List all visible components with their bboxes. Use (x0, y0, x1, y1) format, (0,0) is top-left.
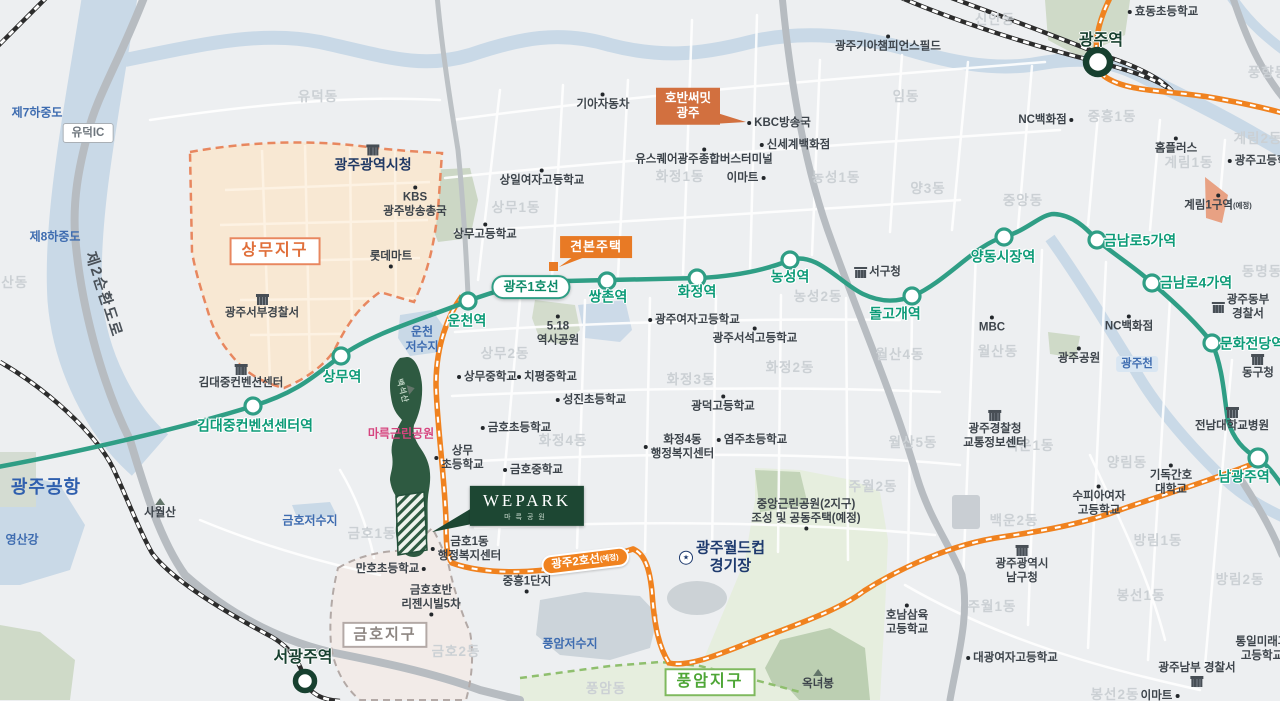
label-text: 홈플러스 (1155, 141, 1197, 155)
label-text: 양림동 (1107, 455, 1147, 471)
building-icon (1017, 548, 1028, 556)
label-text: 농성2동 (794, 289, 843, 305)
label-text: 풍암저수지 (542, 637, 597, 652)
label-text: 김대중컨벤션센터역 (197, 417, 313, 434)
poi-label: 동구청 (1242, 354, 1274, 380)
dong-label: 금호2동 (432, 644, 481, 660)
dong-label: 방림2동 (1216, 572, 1265, 588)
label-text: 남광주역 (1218, 468, 1270, 485)
label-text: 효동초등학교 (1135, 5, 1198, 19)
label-text: 봉선1동 (1117, 588, 1166, 604)
dong-label: 유덕동 (298, 89, 338, 105)
dong-label: 주월2동 (849, 479, 898, 495)
label-text: 상무중학교 (464, 370, 517, 384)
poi-label: 광주남부 경찰서 (1158, 661, 1235, 687)
st-label: 상무역 (323, 368, 362, 385)
label-text: NC백화점 (1018, 113, 1066, 127)
label-text: 김대중컨벤션센터 (199, 376, 284, 390)
mountain-icon (813, 669, 823, 676)
poi-label: 광주경찰청교통정보센터 (963, 410, 1026, 450)
label-text: 금호2동 (432, 644, 481, 660)
label-text: 전남대학교병원 (1195, 419, 1269, 433)
label-text: 광주여자고등학교 (655, 313, 740, 327)
dong-label: 양3동 (910, 181, 945, 197)
label-text: 방림2동 (1216, 572, 1265, 588)
strail-label: 서광주역 (274, 648, 333, 668)
poi-dot (1077, 346, 1081, 350)
dong-label: 화정1동 (656, 169, 705, 185)
label-text: 마륵근린공원 (368, 427, 434, 442)
poi-label: 금호중학교 (503, 463, 563, 477)
label-text: 신세계백화점 (767, 138, 830, 152)
poi-label: 광주동부경찰서 (1213, 293, 1269, 321)
label-text: 주월1동 (968, 599, 1017, 615)
st-label: 남광주역 (1218, 468, 1270, 485)
label-text: 기아자동차 (577, 97, 630, 111)
label-text: 방림1동 (1134, 533, 1183, 549)
label-layer: 유덕동우산동신안동임동중흥1동풍향동계림2동계림1동양3동중앙동동명동상무1동화… (0, 0, 1280, 701)
label-text: 화정4동행정복지센터 (651, 433, 714, 461)
poi-label: MBC (979, 315, 1005, 334)
water-label: 금호저수지 (282, 514, 337, 529)
poi-label: 효동초등학교 (1128, 5, 1198, 19)
wtag-label: 광주천 (1116, 356, 1158, 372)
label-text: 광주남부 경찰서 (1158, 661, 1235, 675)
label-text: 문화전당역 (1220, 335, 1280, 352)
poi-label: 중앙근린공원(2지구)조성 및 공동주택(예정) (751, 497, 860, 530)
poi-label: 전남대학교병원 (1195, 407, 1269, 433)
label-text: 풍향동 (1248, 65, 1280, 81)
label-text: 롯데마트 (370, 249, 412, 263)
label-text: 중흥1단지 (503, 574, 552, 588)
poi-label: 통일미래과고등학교 (1236, 635, 1280, 663)
poi-label: NC백화점 (1105, 314, 1153, 333)
poi-label: 서구청 (855, 265, 901, 279)
label-text: 중앙동 (1003, 193, 1043, 209)
poi-dot (1228, 159, 1232, 163)
poi-label: KBC방송국 (747, 116, 811, 130)
poi-label: 롯데마트 (370, 249, 412, 268)
label-text: 화정2동 (766, 360, 815, 376)
water-label: 영산강 (5, 533, 38, 548)
label-text: 월산4동 (876, 347, 925, 363)
poi-label: 사월산 (144, 498, 176, 520)
poi-label: 수피아여자고등학교 (1073, 484, 1126, 517)
poi-label: 신세계백화점 (760, 138, 830, 152)
label-text: 광주광역시남구청 (996, 557, 1049, 585)
label-text: 농성역 (771, 268, 810, 285)
label-text: NC백화점 (1105, 319, 1153, 333)
d-orange-label: 상무지구 (230, 237, 321, 265)
poi-label: 홈플러스 (1155, 136, 1197, 155)
white-park-label: 백석산 (394, 376, 418, 405)
dong-label: 화정4동 (539, 433, 588, 449)
poi-dot (990, 315, 994, 319)
label-text: 운천저수지 (405, 324, 438, 353)
poi-label: 광주여자고등학교 (648, 313, 740, 327)
label-text: 광주월드컵경기장 (696, 540, 765, 577)
dong-label: 상무1동 (492, 200, 541, 216)
poi-label: 화정4동행정복지센터 (644, 433, 714, 461)
label-text: 백운2동 (990, 513, 1039, 529)
label-text: 쌍촌역 (589, 288, 628, 305)
label-text: 서광주역 (274, 648, 333, 668)
water-label: 제7하중도 (12, 106, 63, 121)
label-text: 백운1동 (1006, 438, 1055, 454)
label-text: 상무역 (323, 368, 362, 385)
poi-dot (503, 468, 507, 472)
label-text: 양동시장역 (971, 248, 1035, 265)
dong-label: 계림2동 (1234, 131, 1280, 147)
poi-dot (457, 375, 461, 379)
poi-label: 금호1동행정복지센터 (431, 535, 501, 563)
ring-label: 제2순환도로 (80, 250, 125, 341)
label-text: 만호초등학교 (356, 562, 419, 576)
poi-dot (753, 326, 757, 330)
poi-dot (747, 121, 751, 125)
poi-label: 금호호반리젠시빌5차 (401, 583, 460, 616)
label-text: 광주기아챔피언스필드 (835, 39, 941, 53)
dong-label: 금호1동 (348, 526, 397, 542)
icbox-label: 유덕IC (63, 123, 114, 143)
label-text: 광주서석고등학교 (713, 331, 798, 345)
label-text: 광주고등학교 (1235, 154, 1280, 168)
label-text: 계림2동 (1234, 131, 1280, 147)
label-text: 광주천 (1121, 357, 1153, 371)
dong-label: 백운1동 (1006, 438, 1055, 454)
poi-dot (966, 656, 970, 660)
pill2-label: 광주2호선(예정) (540, 546, 629, 577)
dong-label: 농성2동 (794, 289, 843, 305)
poi-dot (760, 143, 764, 147)
label-text: 풍암동 (586, 681, 626, 697)
label-text: WEPARK마륵공원 (483, 491, 571, 522)
label-text: 광주경찰청교통정보센터 (963, 422, 1026, 450)
dong-label: 농성1동 (812, 170, 861, 186)
building-icon (368, 147, 379, 155)
st-label: 쌍촌역 (589, 288, 628, 305)
st-label: 금남로4가역 (1160, 274, 1232, 291)
label-text: 영산강 (5, 533, 38, 548)
poi-label: 만호초등학교 (356, 562, 426, 576)
label-text: 금호지구 (353, 626, 416, 644)
poi-dot (1070, 118, 1074, 122)
label-text: 봉선2동 (1091, 687, 1140, 701)
label-text: 동명동 (1242, 264, 1280, 280)
label-text: 염주초등학교 (724, 433, 787, 447)
label-text: 대광여자고등학교 (973, 651, 1058, 665)
poi-dot (886, 34, 890, 38)
poi-dot (422, 567, 426, 571)
label-text: 중앙근린공원(2지구)조성 및 공동주택(예정) (751, 497, 860, 525)
dong-label: 주월1동 (968, 599, 1017, 615)
dong-label: 상무2동 (481, 346, 530, 362)
label-text: 호남삼육고등학교 (886, 608, 928, 636)
building-icon (1213, 305, 1224, 313)
poi-label: 5.18역사공원 (537, 314, 579, 347)
label-text: 상무고등학교 (453, 227, 516, 241)
poi-dot (1175, 694, 1179, 698)
poi-label: 광주서부경찰서 (225, 294, 299, 320)
mountain-icon (155, 498, 165, 505)
poi-label: 치평중학교 (517, 370, 577, 384)
label-text: 제8하중도 (30, 230, 81, 245)
label-text: 백석산 (394, 378, 410, 405)
label-text: 화정1동 (656, 169, 705, 185)
label-text: 상무지구 (242, 241, 309, 261)
poi-label: 금호초등학교 (481, 421, 551, 435)
d-green-label: 풍암지구 (665, 668, 756, 696)
label-text: 광주2호선(예정) (551, 550, 620, 572)
city-label: 광주광역시청 (334, 144, 411, 173)
poi-dot (556, 398, 560, 402)
label-text: 광주1호선 (503, 279, 558, 295)
poi-dot (434, 456, 438, 460)
map-canvas: 유덕동우산동신안동임동중흥1동풍향동계림2동계림1동양3동중앙동동명동상무1동화… (0, 0, 1280, 701)
pink-label: 마륵근린공원 (368, 427, 434, 442)
pill1-label: 광주1호선 (491, 275, 570, 299)
poi-dot (1216, 193, 1220, 197)
dong-label: 월산5동 (889, 435, 938, 451)
dong-label: 화정2동 (766, 360, 815, 376)
label-text: 계림1구역(예정) (1184, 198, 1252, 212)
label-text: 돌고개역 (869, 305, 921, 322)
building-icon (235, 367, 246, 375)
poi-dot (905, 603, 909, 607)
strail-label: 광주역 (1079, 31, 1123, 51)
poi-dot (1174, 136, 1178, 140)
label-text: 광주광역시청 (334, 156, 411, 173)
poi-dot (525, 590, 529, 594)
building-icon (855, 269, 866, 277)
label-text: 제7하중도 (12, 106, 63, 121)
label-text: 임동 (893, 89, 920, 105)
poi-dot (717, 438, 721, 442)
dong-label: 월산동 (978, 344, 1018, 360)
label-text: 금남로4가역 (1160, 274, 1232, 291)
label-text: 제2순환도로 (80, 250, 125, 341)
poi-dot (431, 547, 435, 551)
stadium-label: ★광주월드컵경기장 (679, 540, 765, 577)
label-text: 풍암지구 (677, 672, 744, 692)
poi-label: 상무중학교 (457, 370, 517, 384)
dong-label: 화정3동 (667, 372, 716, 388)
dong-label: 풍향동 (1248, 65, 1280, 81)
label-text: 광주공항 (11, 477, 81, 499)
label-text: 옥녀봉 (802, 677, 834, 691)
label-text: 금호중학교 (510, 463, 563, 477)
label-text: 치평중학교 (524, 370, 577, 384)
label-text: KBC방송국 (754, 116, 811, 130)
dong-label: 임동 (893, 89, 920, 105)
label-text: 금호호반리젠시빌5차 (401, 583, 460, 611)
poi-dot (556, 314, 560, 318)
label-text: 주월2동 (849, 479, 898, 495)
label-text: 사월산 (144, 506, 176, 520)
label-text: 성진초등학교 (563, 393, 626, 407)
poi-label: KBS광주방송총국 (383, 185, 446, 218)
st-label: 김대중컨벤션센터역 (197, 417, 313, 434)
poi-label: 성진초등학교 (556, 393, 626, 407)
poi-dot (429, 613, 433, 617)
poi-label: 광주고등학교 (1228, 154, 1280, 168)
water-label: 풍암저수지 (542, 637, 597, 652)
st-label: 농성역 (771, 268, 810, 285)
poi-dot (389, 265, 393, 269)
label-text: 동구청 (1242, 366, 1274, 380)
poi-dot (1127, 314, 1131, 318)
label-text: 수피아여자고등학교 (1073, 489, 1126, 517)
poi-dot (804, 527, 808, 531)
poi-dot (702, 147, 706, 151)
dong-label: 월산4동 (876, 347, 925, 363)
water-big-label: 광주공항 (11, 477, 81, 499)
poi-dot (721, 394, 725, 398)
label-text: 신안동 (975, 12, 1015, 28)
dong-label: 양림동 (1107, 455, 1147, 471)
st-label: 양동시장역 (971, 248, 1035, 265)
poi-label: 중흥1단지 (503, 574, 552, 593)
poi-label: 상무초등학교 (434, 444, 483, 472)
label-text: 양3동 (910, 181, 945, 197)
co-model-label: 견본주택 (560, 236, 632, 258)
label-text: 금호1동 (348, 526, 397, 542)
label-text: 이마트 (1141, 689, 1173, 701)
poi-label: 이마트 (1141, 689, 1180, 701)
label-text: KBS광주방송총국 (383, 190, 446, 218)
st-label: 돌고개역 (869, 305, 921, 322)
d-gray-label: 금호지구 (342, 622, 427, 648)
wepark-label: WEPARK마륵공원 (470, 486, 584, 526)
label-text: 계림1동 (1165, 155, 1214, 171)
label-text: 유스퀘어광주종합버스터미널 (635, 152, 773, 166)
label-text: 금호저수지 (282, 514, 337, 529)
poi-label: 옥녀봉 (802, 669, 834, 691)
water-label: 제8하중도 (30, 230, 81, 245)
label-text: 광덕고등학교 (691, 399, 754, 413)
st-label: 문화전당역 (1220, 335, 1280, 352)
poi-label: 광주서석고등학교 (713, 326, 798, 345)
poi-label: 유스퀘어광주종합버스터미널 (635, 147, 773, 166)
dong-label: 중앙동 (1003, 193, 1043, 209)
label-text: 화정역 (678, 283, 717, 300)
water-label: 운천저수지 (405, 324, 438, 353)
label-text: 금호1동행정복지센터 (438, 535, 501, 563)
dong-label: 계림1동 (1165, 155, 1214, 171)
dong-label: 신안동 (975, 12, 1015, 28)
label-text: 광주서부경찰서 (225, 306, 299, 320)
label-text: 견본주택 (570, 239, 622, 255)
poi-label: 광주광역시남구청 (996, 545, 1049, 585)
poi-label: 광주공원 (1058, 346, 1100, 365)
dong-label: 봉선2동 (1091, 687, 1140, 701)
dong-label: 우산동 (0, 275, 28, 291)
label-text: 광주동부경찰서 (1227, 293, 1269, 321)
poi-dot (1097, 484, 1101, 488)
poi-label: 기독간호대학교 (1150, 463, 1192, 496)
label-text: 이마트 (727, 171, 759, 185)
label-text: 서구청 (869, 265, 901, 279)
label-text: 상무초등학교 (441, 444, 483, 472)
dong-label: 봉선1동 (1117, 588, 1166, 604)
label-text: 상일여자고등학교 (500, 173, 585, 187)
poi-dot (761, 176, 765, 180)
building-icon (257, 297, 268, 305)
label-text: 월산동 (978, 344, 1018, 360)
label-text: 통일미래과고등학교 (1236, 635, 1280, 663)
poi-label: NC백화점 (1018, 113, 1073, 127)
building-icon (1227, 410, 1238, 418)
soccer-icon: ★ (679, 551, 693, 565)
label-text: 5.18역사공원 (537, 319, 579, 347)
poi-label: 계림1구역(예정) (1184, 193, 1252, 212)
poi-dot (517, 375, 521, 379)
poi-label: 김대중컨벤션센터 (199, 364, 284, 390)
label-text: 금남로5가역 (1104, 232, 1176, 249)
dong-label: 동명동 (1242, 264, 1280, 280)
label-text: 운천역 (448, 312, 487, 329)
dong-label: 중흥1동 (1088, 109, 1137, 125)
building-icon (1191, 679, 1202, 687)
poi-label: 대광여자고등학교 (966, 651, 1058, 665)
co-hoban-label: 호반써밋광주 (656, 88, 720, 125)
poi-label: 상일여자고등학교 (500, 168, 585, 187)
label-text: 상무2동 (481, 346, 530, 362)
label-text: 농성1동 (812, 170, 861, 186)
poi-label: 기아자동차 (577, 92, 630, 111)
label-text: 금호초등학교 (488, 421, 551, 435)
st-label: 금남로5가역 (1104, 232, 1176, 249)
poi-label: 상무고등학교 (453, 222, 516, 241)
poi-label: 염주초등학교 (717, 433, 787, 447)
poi-dot (1169, 463, 1173, 467)
label-text: 화정3동 (667, 372, 716, 388)
poi-dot (481, 426, 485, 430)
poi-dot (644, 445, 648, 449)
label-text: 유덕동 (298, 89, 338, 105)
label-text: 호반써밋광주 (665, 91, 711, 122)
poi-label: 이마트 (727, 171, 766, 185)
poi-dot (483, 222, 487, 226)
building-icon (989, 413, 1000, 421)
label-text: 화정4동 (539, 433, 588, 449)
poi-label: 광주기아챔피언스필드 (835, 34, 941, 53)
poi-label: 호남삼육고등학교 (886, 603, 928, 636)
poi-dot (413, 185, 417, 189)
dong-label: 백운2동 (990, 513, 1039, 529)
dong-label: 풍암동 (586, 681, 626, 697)
mountain-icon (407, 383, 416, 394)
label-text: 광주역 (1079, 31, 1123, 51)
st-label: 운천역 (448, 312, 487, 329)
poi-label: 광덕고등학교 (691, 394, 754, 413)
label-text: 유덕IC (72, 126, 105, 140)
label-text: MBC (979, 320, 1005, 334)
label-text: 상무1동 (492, 200, 541, 216)
poi-dot (601, 92, 605, 96)
poi-dot (1128, 10, 1132, 14)
building-icon (1253, 357, 1264, 365)
dong-label: 방림1동 (1134, 533, 1183, 549)
label-text: 월산5동 (889, 435, 938, 451)
label-text: 중흥1동 (1088, 109, 1137, 125)
label-text: 기독간호대학교 (1150, 468, 1192, 496)
label-text: 우산동 (0, 275, 28, 291)
poi-dot (648, 318, 652, 322)
label-text: 광주공원 (1058, 351, 1100, 365)
poi-dot (540, 168, 544, 172)
st-label: 화정역 (678, 283, 717, 300)
